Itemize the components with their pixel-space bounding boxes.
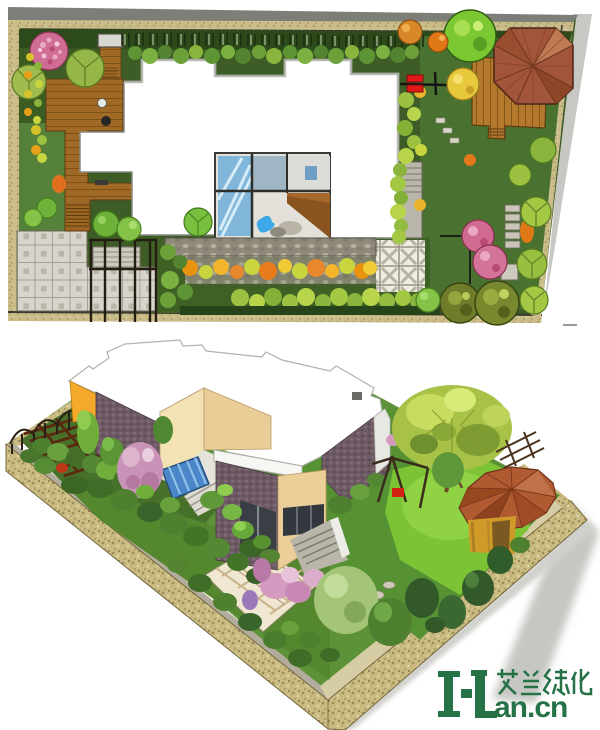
svg-text:an.cn: an.cn bbox=[494, 691, 567, 724]
